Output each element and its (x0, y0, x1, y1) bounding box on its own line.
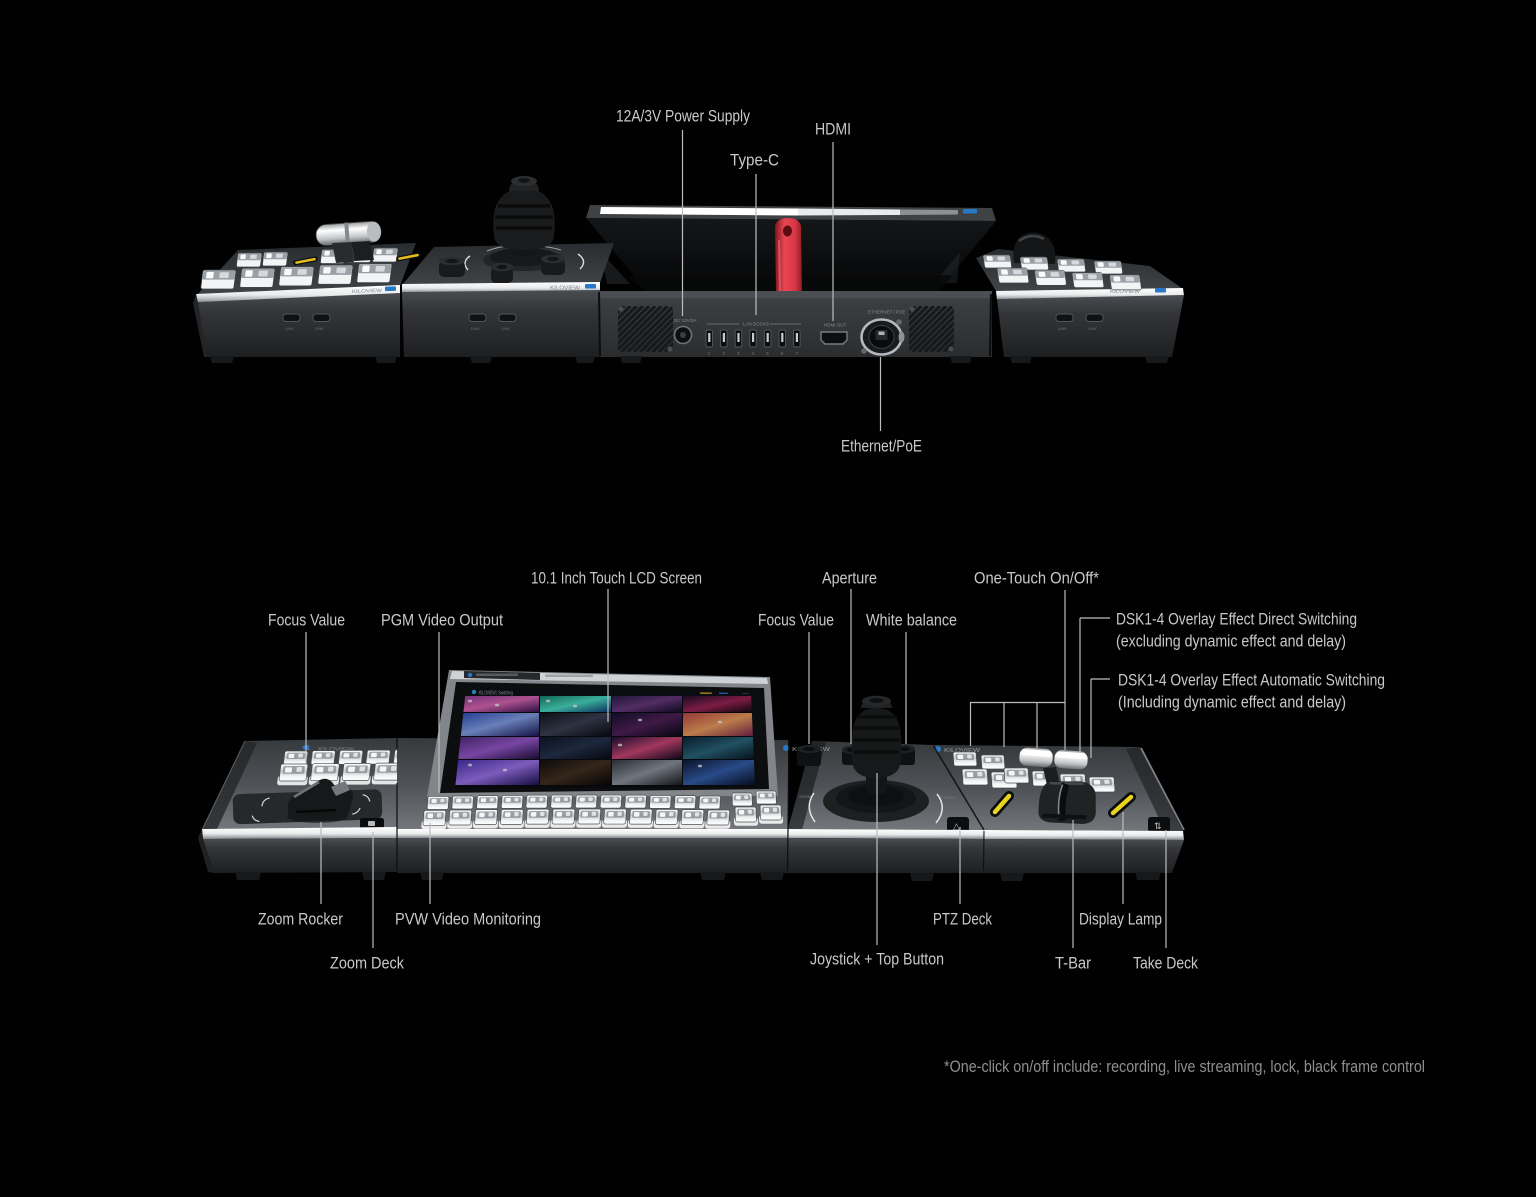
svg-text:DSK1-4 Overlay Effect Automati: DSK1-4 Overlay Effect Automatic Switchin… (1118, 671, 1385, 690)
svg-text:PTZ Deck: PTZ Deck (933, 910, 992, 929)
svg-text:Zoom Rocker: Zoom Rocker (258, 910, 343, 929)
svg-text:Take Deck: Take Deck (1133, 954, 1198, 973)
svg-text:⇅: ⇅ (1154, 821, 1162, 831)
svg-text:LINK: LINK (315, 326, 324, 331)
svg-text:12A/3V Power Supply: 12A/3V Power Supply (616, 107, 750, 126)
svg-text:White balance: White balance (866, 611, 957, 630)
svg-text:Focus Value: Focus Value (268, 611, 345, 630)
svg-text:ETHERNET / POE: ETHERNET / POE (868, 310, 905, 315)
svg-text:PGM Video Output: PGM Video Output (381, 611, 503, 630)
svg-text:LINK: LINK (471, 326, 480, 331)
svg-text:△: △ (953, 821, 960, 831)
svg-text:FOCUS: FOCUS (941, 795, 955, 800)
svg-text:LINK: LINK (285, 326, 294, 331)
svg-text:ZOOM: ZOOM (799, 794, 811, 799)
svg-text:KILOVIEW: KILOVIEW (352, 288, 383, 295)
svg-text:(excluding dynamic effect and: (excluding dynamic effect and delay) (1116, 632, 1346, 651)
svg-text:Ethernet/PoE: Ethernet/PoE (841, 437, 922, 456)
svg-text:T-Bar: T-Bar (1055, 954, 1091, 973)
svg-text:DC 12V/3A: DC 12V/3A (674, 318, 697, 323)
svg-text:PVW Video Monitoring: PVW Video Monitoring (395, 910, 541, 929)
svg-text:LINK: LINK (1058, 326, 1067, 331)
svg-text:One-Touch On/Off*: One-Touch On/Off* (974, 569, 1099, 588)
svg-text:Type-C: Type-C (730, 151, 779, 170)
svg-text:LINK: LINK (1088, 326, 1097, 331)
svg-text:Joystick + Top Button: Joystick + Top Button (810, 950, 944, 969)
svg-text:10.1 Inch Touch LCD Screen: 10.1 Inch Touch LCD Screen (531, 569, 702, 588)
svg-text:LINK: LINK (501, 326, 510, 331)
svg-text:HDMI OUT: HDMI OUT (824, 323, 846, 328)
svg-text:*One-click on/off include: rec: *One-click on/off include: recording, li… (944, 1057, 1425, 1076)
svg-text:HDMI: HDMI (815, 120, 851, 139)
svg-text:DSK1-4 Overlay Effect Direct S: DSK1-4 Overlay Effect Direct Switching (1116, 610, 1357, 629)
svg-text:Focus Value: Focus Value (758, 611, 834, 630)
svg-text:Display Lamp: Display Lamp (1079, 910, 1162, 929)
svg-text:(Including dynamic effect and: (Including dynamic effect and delay) (1118, 693, 1346, 712)
svg-text:Zoom Deck: Zoom Deck (330, 954, 404, 973)
svg-text:Aperture: Aperture (822, 569, 877, 588)
svg-text:LAN DOCKS: LAN DOCKS (743, 322, 769, 327)
